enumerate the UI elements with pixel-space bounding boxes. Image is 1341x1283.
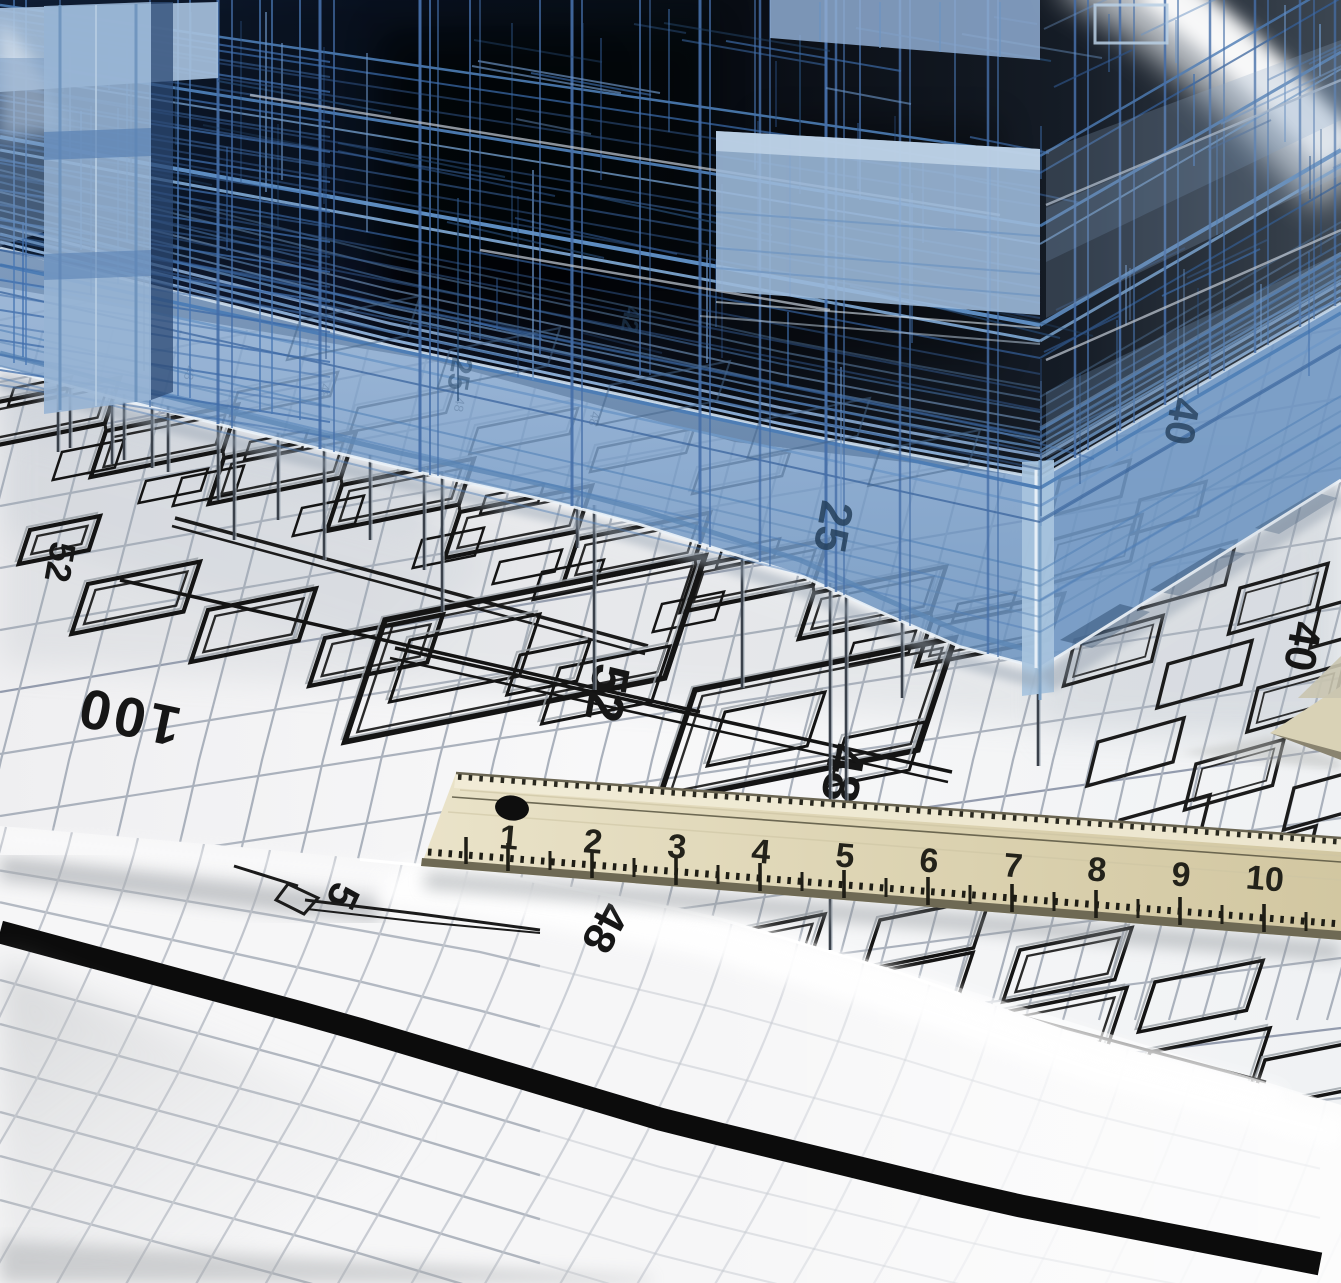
- svg-text:40: 40: [1274, 618, 1331, 675]
- svg-text:4: 4: [750, 832, 772, 872]
- svg-text:48: 48: [809, 739, 876, 806]
- svg-text:6: 6: [918, 841, 940, 881]
- svg-text:40: 40: [1155, 394, 1209, 448]
- svg-text:1: 1: [498, 818, 520, 858]
- svg-text:42: 42: [615, 304, 646, 335]
- svg-text:52: 52: [573, 659, 640, 726]
- svg-text:9: 9: [1170, 855, 1192, 895]
- svg-text:5: 5: [834, 836, 856, 876]
- svg-text:3: 3: [666, 827, 688, 867]
- svg-text:2: 2: [582, 822, 604, 862]
- svg-text:8: 8: [1086, 850, 1108, 890]
- svg-text:10: 10: [1244, 858, 1285, 899]
- svg-text:25: 25: [804, 497, 864, 556]
- svg-text:52: 52: [37, 539, 84, 586]
- svg-text:7: 7: [1002, 846, 1024, 886]
